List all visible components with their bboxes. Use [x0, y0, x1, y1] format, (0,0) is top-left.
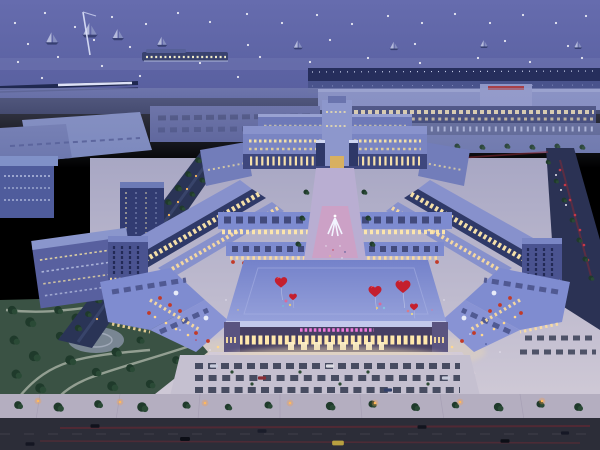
cafe-light-dot [165, 322, 168, 325]
headlight-dot [555, 174, 557, 176]
cafe-light-dot [493, 328, 496, 331]
harbor-light-dot [44, 12, 46, 14]
car [258, 429, 267, 433]
harbor-light-dot [316, 14, 318, 16]
taillight-dot [569, 199, 572, 202]
street-lamp [372, 400, 379, 407]
taillight-dot [564, 184, 567, 187]
streetlight-dot [186, 188, 188, 190]
harbor-light-dot [489, 22, 491, 24]
cafe-light-dot [154, 316, 157, 319]
left-turret [316, 142, 325, 166]
car [442, 376, 450, 379]
headlight-dot [560, 189, 562, 191]
roof-eave-highlight [224, 321, 448, 327]
awning-dot [508, 296, 512, 300]
awning-dot [231, 260, 235, 264]
harbor-light-dot [414, 43, 416, 45]
harbor-light-dot [14, 22, 16, 24]
taillight-dot [559, 169, 562, 172]
car [418, 425, 427, 429]
street-lamp [287, 400, 294, 407]
hedge-dot [298, 370, 301, 373]
person-dot [499, 351, 501, 353]
parking-lot-main [170, 355, 480, 396]
harbor-light-dot [247, 44, 249, 46]
harbor-light-dot [367, 57, 369, 59]
aerial-night-rendering [0, 0, 600, 450]
car [180, 437, 190, 441]
balloon-dot [379, 303, 382, 306]
taillight-dot [583, 244, 586, 247]
headlight-dot [565, 204, 567, 206]
harbor-light-dot [585, 15, 587, 17]
balloon-dot [285, 300, 288, 303]
car [26, 442, 35, 446]
turret-cap [492, 291, 497, 296]
hedge-dot [338, 382, 341, 385]
harbor-light-dot [101, 65, 103, 67]
car [561, 431, 569, 434]
balloon-dot [376, 307, 378, 309]
hedge-dot [250, 382, 253, 385]
harbor-light-dot [387, 15, 389, 17]
cafe-light-dot [187, 334, 190, 337]
awning-dot [460, 339, 464, 343]
person-dot [485, 343, 487, 345]
person-dot [341, 257, 342, 258]
harbor-light-dot [329, 39, 331, 41]
harbor-light-dot [477, 57, 479, 59]
harbor-light-dot [504, 40, 506, 42]
awning-dot [498, 303, 502, 307]
taillight-dot [574, 214, 577, 217]
awning-dot [158, 296, 162, 300]
awning-dot [168, 303, 172, 307]
harbor-light-dot [145, 23, 147, 25]
awning-dot [472, 331, 476, 335]
harbor-light-dot [421, 22, 423, 24]
person-dot [209, 349, 211, 351]
street-lamp [539, 398, 546, 405]
car [326, 364, 334, 367]
awning-dot [488, 309, 492, 313]
person-dot [431, 309, 432, 310]
hedge-dot [426, 382, 429, 385]
awning-dot [435, 260, 439, 264]
person-dot [329, 255, 330, 256]
person-dot [344, 251, 345, 252]
cafe-light-dot [481, 334, 484, 337]
awning-dot [206, 339, 210, 343]
balloon-dot [383, 307, 385, 309]
balloon-dot [407, 310, 410, 313]
harbor-light-dot [259, 56, 261, 58]
harbor-light-dot [581, 57, 583, 59]
hedge-dot [366, 370, 369, 373]
harbor-light-dot [529, 61, 531, 63]
street-lamp [35, 398, 42, 405]
harbor-light-dot [177, 12, 179, 14]
hedge-dot [230, 370, 233, 373]
awning-dot [519, 311, 523, 315]
person-dot [443, 299, 444, 300]
person-dot [339, 245, 340, 246]
person-dot [225, 299, 226, 300]
cafe-light-dot [503, 322, 506, 325]
turret-cap [174, 291, 179, 296]
car [384, 388, 392, 391]
streetlight-dot [195, 175, 197, 177]
golden-entrance [330, 156, 344, 169]
turret-cap [462, 316, 467, 321]
street-lamp [117, 399, 124, 406]
person-dot [179, 329, 181, 331]
harbor-light-dot [41, 77, 43, 79]
car [501, 439, 510, 443]
balloon-dot [411, 313, 413, 315]
cafe-light-dot [175, 328, 178, 331]
harbor-light-dot [129, 46, 131, 48]
balloon-dot [289, 304, 291, 306]
harbor-light-dot [139, 75, 141, 77]
harbor-light-dot [567, 45, 569, 47]
person-dot [237, 309, 238, 310]
harbor-light-dot [93, 39, 95, 41]
harbor-light-dot [199, 62, 201, 64]
cafe-light-dot [514, 316, 517, 319]
car [210, 364, 218, 367]
harbor-light-dot [27, 43, 29, 45]
person-dot [332, 249, 333, 250]
harbor-light-dot [454, 13, 456, 15]
streetlight-dot [168, 214, 170, 216]
harbor-light-dot [237, 76, 239, 78]
harbor-light-dot [17, 61, 19, 63]
harbor-light-dot [209, 21, 211, 23]
awning-dot [147, 311, 151, 315]
taillight-dot [579, 229, 582, 232]
right-turret [349, 142, 358, 166]
turret-cap [204, 316, 209, 321]
hall-roof [226, 260, 446, 321]
harbor-light-dot [111, 16, 113, 18]
car [91, 424, 100, 428]
person-dot [325, 245, 326, 246]
awning-dot [178, 309, 182, 313]
harbor-light-dot [522, 14, 524, 16]
person-dot [195, 339, 197, 341]
harbor-light-dot [57, 56, 59, 58]
harbor-light-dot [351, 23, 353, 25]
street-lamp [202, 400, 209, 407]
balloon-dot [282, 305, 284, 307]
cafe-light-dot [217, 346, 220, 349]
harbor-light-dot [281, 22, 283, 24]
sidewalk-band [0, 394, 600, 420]
awning-dot [194, 331, 198, 335]
scene-canvas [0, 0, 600, 450]
street-lamp [457, 399, 464, 406]
harbor-light-dot [309, 61, 311, 63]
person-dot [469, 333, 471, 335]
harbor-light-dot [246, 13, 248, 15]
harbor-light-dot [74, 26, 76, 28]
streetlight-dot [177, 201, 179, 203]
tower-cap [328, 96, 346, 103]
harbor-light-dot [555, 22, 557, 24]
bottom-road [0, 418, 600, 450]
streetlight-dot [96, 318, 98, 320]
car [332, 441, 344, 446]
car [258, 376, 266, 379]
harbor-light-dot [419, 62, 421, 64]
cafe-light-dot [451, 346, 454, 349]
